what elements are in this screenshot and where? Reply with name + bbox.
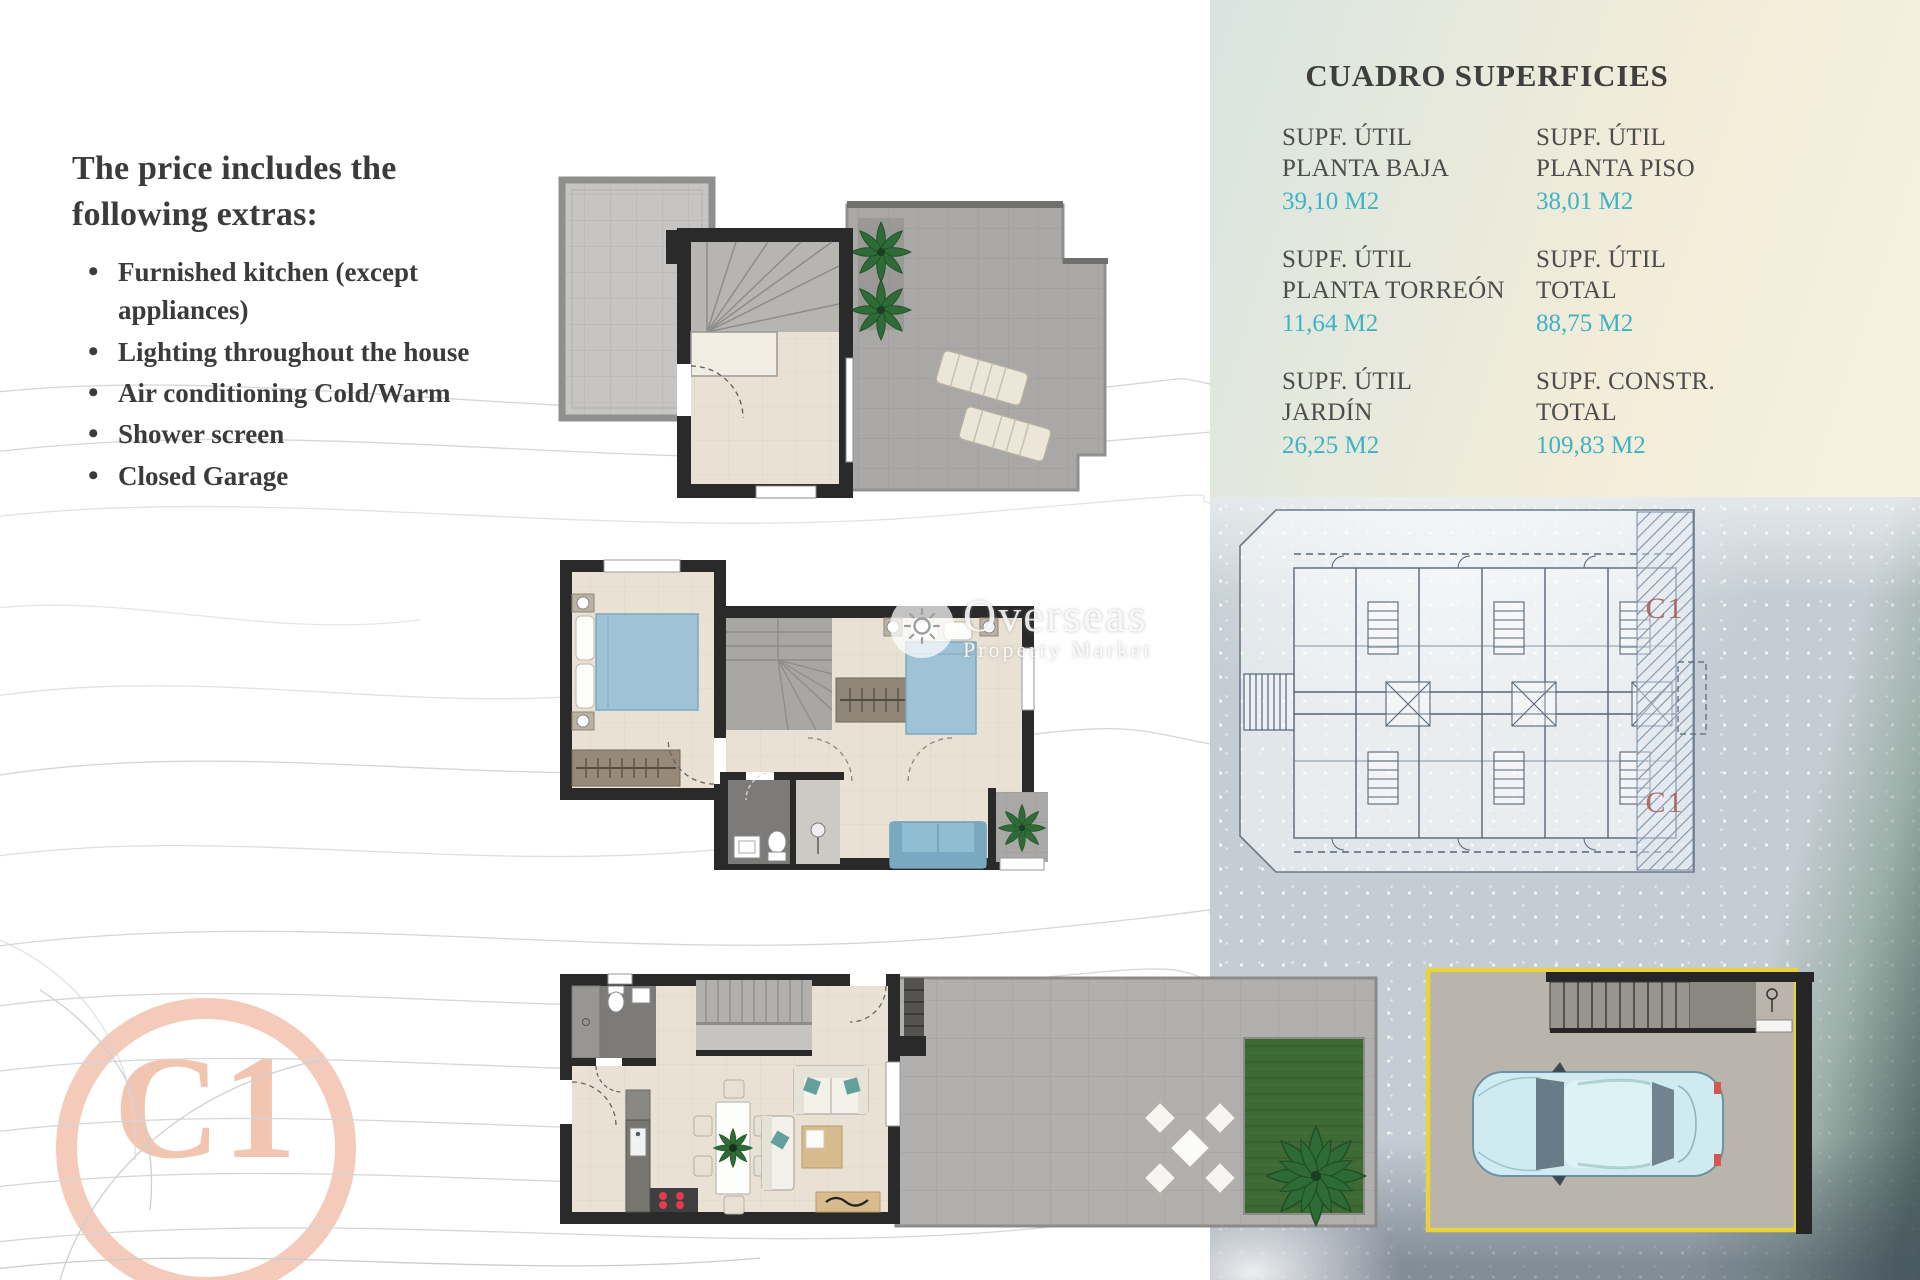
- extras-item-label: Furnished kitchen (except appliances): [118, 257, 418, 325]
- tv-bench: [816, 1192, 880, 1212]
- cooktop: [650, 1188, 698, 1212]
- wardrobe: [572, 750, 680, 786]
- watermark-text: Overseas Property Market: [963, 594, 1153, 662]
- taillight: [1714, 1082, 1721, 1094]
- window: [1000, 858, 1044, 870]
- surface-value: 38,01 M2: [1536, 186, 1722, 217]
- window: [608, 974, 632, 984]
- site-plan: C1 C1: [1236, 506, 1710, 878]
- extras-item: Closed Garage: [72, 457, 512, 495]
- floorplan-torreon: [558, 168, 1118, 508]
- plant-icon: [999, 805, 1046, 852]
- car: [1473, 1062, 1723, 1186]
- building-outline: [1294, 554, 1676, 852]
- sun-icon: [890, 594, 954, 658]
- siteplan-unit-label: C1: [1645, 592, 1684, 625]
- extras-item-label: Lighting throughout the house: [118, 337, 469, 367]
- lamp-icon: [577, 597, 589, 609]
- taillight: [1714, 1154, 1721, 1166]
- bathroom: [720, 772, 844, 870]
- window: [846, 358, 853, 462]
- window: [756, 486, 816, 498]
- surface-value: 88,75 M2: [1536, 308, 1722, 339]
- fixture: [811, 823, 825, 837]
- stairs: [696, 980, 812, 1056]
- patio: [896, 978, 1376, 1227]
- toilet: [768, 831, 786, 853]
- lamp-icon: [577, 715, 589, 727]
- floorplan-ground-floor: [556, 962, 1390, 1262]
- torreon-room: [666, 228, 853, 498]
- extras-item-label: Closed Garage: [118, 461, 288, 491]
- surface-value: 109,83 M2: [1536, 430, 1722, 461]
- sink: [632, 988, 650, 1003]
- watermark: Overseas Property Market: [890, 594, 1153, 662]
- plant-icon: [1265, 1125, 1367, 1227]
- stairs: [726, 618, 832, 730]
- car-roof: [1564, 1080, 1652, 1168]
- surface-value: 39,10 M2: [1282, 186, 1536, 217]
- surfaces-grid: SUPF. ÚTIL PLANTA BAJA 39,10 M2 SUPF. ÚT…: [1252, 122, 1722, 461]
- garden: [1244, 1038, 1367, 1227]
- extras-item-label: Air conditioning Cold/Warm: [118, 378, 451, 408]
- plant-icon: [851, 280, 911, 340]
- surfaces-title: CUADRO SUPERFICIES: [1252, 58, 1722, 94]
- extras-item: Lighting throughout the house: [72, 333, 512, 371]
- door: [1756, 1020, 1792, 1032]
- surfaces-table: CUADRO SUPERFICIES SUPF. ÚTIL PLANTA BAJ…: [1252, 58, 1722, 461]
- toilet: [608, 992, 624, 1012]
- sliding-door: [886, 1062, 900, 1126]
- surface-cell: SUPF. ÚTIL TOTAL 88,75 M2: [1536, 244, 1722, 339]
- centerpiece-plant: [714, 1129, 753, 1168]
- surface-cell: SUPF. ÚTIL PLANTA BAJA 39,10 M2: [1282, 122, 1536, 217]
- extras-item: Air conditioning Cold/Warm: [72, 374, 512, 412]
- extras-heading: The price includes the following extras:: [72, 146, 512, 237]
- extras-item: Furnished kitchen (except appliances): [72, 253, 512, 330]
- entrance-stairs: [1244, 674, 1294, 730]
- surface-cell: SUPF. ÚTIL JARDÍN 26,25 M2: [1282, 366, 1536, 461]
- window: [604, 560, 680, 572]
- siteplan-unit-label: C1: [1645, 786, 1684, 819]
- extras-list: Furnished kitchen (except appliances) Li…: [72, 253, 512, 495]
- surface-cell: SUPF. ÚTIL PLANTA PISO 38,01 M2: [1536, 122, 1722, 217]
- surface-cell: SUPF. CONSTR. TOTAL 109,83 M2: [1536, 366, 1722, 461]
- extras-item-label: Shower screen: [118, 419, 284, 449]
- brochure-page: C1 The price includes the following extr…: [0, 0, 1920, 1280]
- sink: [734, 836, 760, 858]
- surface-cell: SUPF. ÚTIL PLANTA TORREÓN 11,64 M2: [1282, 244, 1536, 339]
- garage-plan: [1420, 960, 1822, 1262]
- rear-window: [1652, 1082, 1674, 1166]
- windshield: [1536, 1078, 1564, 1170]
- sofa: [890, 822, 986, 868]
- garage-wall: [1796, 972, 1812, 1234]
- balcony: [988, 788, 1048, 870]
- extras-block: The price includes the following extras:…: [72, 146, 512, 498]
- house: [560, 974, 900, 1224]
- exterior-stairs: [904, 978, 924, 1036]
- extras-item: Shower screen: [72, 415, 512, 453]
- surface-value: 11,64 M2: [1282, 308, 1536, 339]
- plant-icon: [851, 222, 911, 282]
- surface-value: 26,25 M2: [1282, 430, 1536, 461]
- roof-terrace-right: [847, 201, 1108, 490]
